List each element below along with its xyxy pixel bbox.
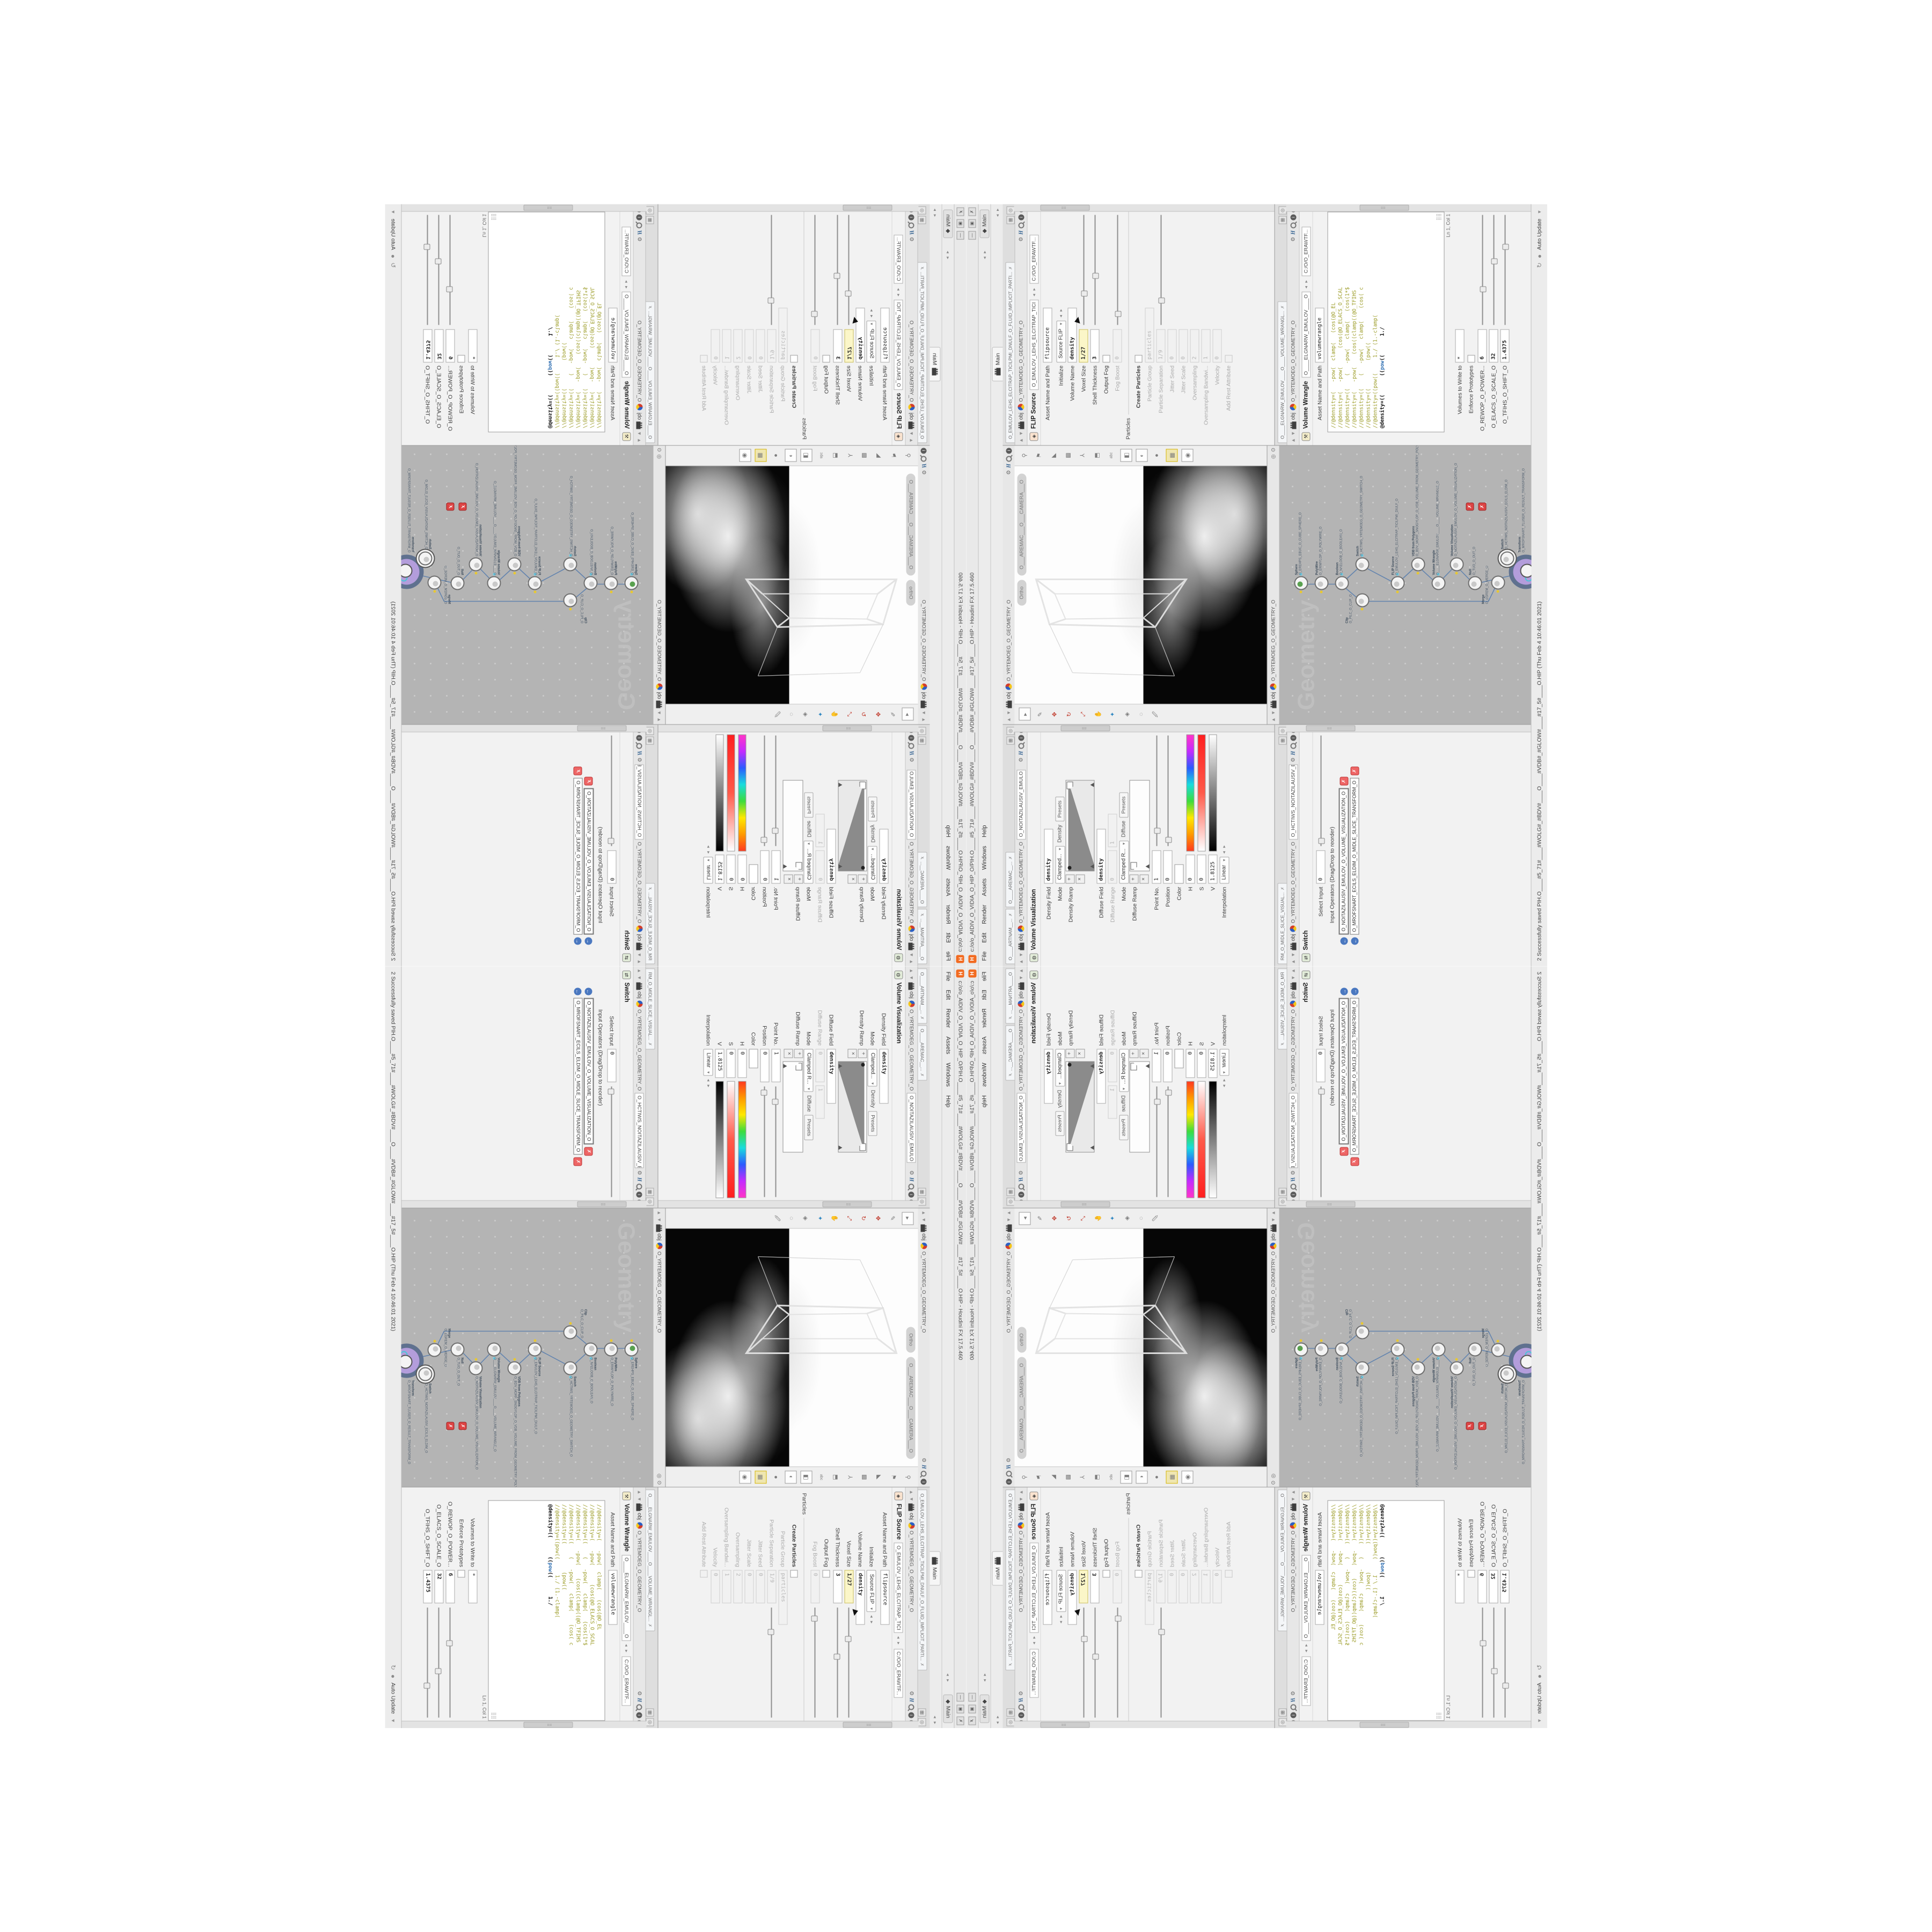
pin-display-icon[interactable]: ⚲ [903, 1471, 913, 1483]
pane-scrollbar[interactable] [658, 1200, 918, 1207]
volumes-to-write-input[interactable]: * [468, 329, 477, 362]
tripod-display-icon[interactable]: ⅄ [1077, 449, 1087, 461]
info-icon[interactable]: i [909, 1191, 914, 1197]
voxel-size-slider[interactable] [1080, 1606, 1087, 1718]
create-particles-checkbox[interactable] [791, 1570, 798, 1577]
saturation-slider[interactable] [727, 1081, 735, 1198]
grid-home-icon[interactable]: ▦ [1166, 1470, 1177, 1483]
nav-up-icon[interactable]: ▲ [1270, 1210, 1276, 1215]
viewport-render[interactable]: Ortho O___AREMAC___O___CAMERA___O [665, 1228, 918, 1466]
tripod-display-icon[interactable]: ⅄ [1077, 1471, 1087, 1483]
asset-file-path-field[interactable]: C:/O/O_ERAWTF... [894, 1649, 903, 1697]
update-mode-selector[interactable]: Auto Update [390, 1682, 396, 1714]
delete-input-icon[interactable]: ✗ [1340, 1147, 1348, 1155]
color-swatch[interactable] [749, 1049, 758, 1068]
node-vdb-from-polygons[interactable] [507, 557, 521, 571]
tab-close-icon[interactable]: ✗ [648, 1042, 653, 1046]
saturation-input[interactable]: 0 [1197, 1049, 1206, 1078]
power-slider[interactable] [1479, 1606, 1486, 1718]
menu-edit[interactable]: Edit [945, 932, 951, 942]
scale-tool-icon[interactable]: ⤢ [1078, 1212, 1088, 1224]
value-input[interactable]: 1.8125 [1208, 1049, 1217, 1078]
jitter-seed-input[interactable]: 0 [1167, 329, 1176, 362]
tab-close-icon[interactable]: ✗ [1008, 913, 1013, 917]
pane-tab-flip[interactable]: O_EMULOV_LEHS_ELCITRAP_TICILPMI_DNULF_O_… [918, 262, 927, 442]
pin-display-icon[interactable]: ⚲ [1019, 449, 1029, 461]
asset-file-path-field[interactable]: C:/O/O_ERAWTF... [894, 235, 903, 283]
search-icon[interactable] [1018, 743, 1024, 749]
density-mode-dropdown[interactable]: Clamped... [868, 846, 877, 883]
pane-maximize-icon[interactable]: ◎ [646, 727, 654, 735]
enforce-prototypes-checkbox[interactable] [458, 1570, 465, 1577]
jitter-scale-input[interactable]: 0 [744, 329, 753, 362]
diffuse-mode-dropdown[interactable]: Clamped R... [1119, 840, 1129, 883]
nav-up-icon[interactable]: ▲ [1290, 438, 1296, 443]
gear-icon[interactable]: ⚙ [909, 1170, 914, 1175]
asset-file-path-field[interactable]: C:/O/O_ERAWTF... [1301, 1656, 1311, 1705]
network-path[interactable]: O_YRTEMOEG_O_GEOMETRY_O [1018, 320, 1024, 402]
pane-tab-wrangle[interactable]: O____ELGNARW_EMULOV____O____VOLUME_WRANG… [1277, 301, 1286, 442]
rotate-tool-icon[interactable]: ↻ [858, 1212, 869, 1224]
node-path-field[interactable]: O_NOITAZILAUSIV_EMULO [1016, 1093, 1026, 1162]
curve-display-icon[interactable]: ◣ [874, 1471, 884, 1483]
fog-boost-slider[interactable] [1114, 214, 1121, 326]
nav-down-icon[interactable]: ▼ [1290, 952, 1296, 957]
shell-thickness-slider[interactable] [834, 214, 841, 326]
spinner-arrows-icon[interactable]: ◂ ▸ [1221, 1079, 1227, 1088]
search-icon[interactable] [921, 456, 927, 462]
pane-scrollbar[interactable] [401, 204, 646, 211]
pane-maximize-icon[interactable]: ◎ [646, 1197, 654, 1205]
nav-down-icon[interactable]: ▼ [636, 431, 642, 436]
close-button[interactable]: ✗ [956, 1716, 964, 1725]
power-slider[interactable] [447, 214, 454, 326]
diffuse-range-max-input[interactable]: 1 [1108, 1085, 1117, 1118]
gear-icon[interactable]: ⚙ [636, 237, 642, 241]
search-icon[interactable] [1290, 743, 1296, 749]
info-icon[interactable]: i [909, 214, 914, 220]
flag-display-icon[interactable]: ⚑ [1033, 1471, 1044, 1483]
tab-close-icon[interactable]: ✗ [648, 887, 653, 890]
close-button[interactable]: ✗ [968, 207, 976, 216]
shelf-tab-main[interactable]: Main [992, 1551, 1002, 1585]
update-mode-selector[interactable]: Auto Update [390, 218, 396, 250]
fog-boost-slider[interactable] [811, 214, 819, 326]
scale-input[interactable]: 32 [1489, 329, 1498, 362]
tripod-display-icon[interactable]: ⅄ [845, 449, 855, 461]
tab-close-icon[interactable]: ✗ [1280, 305, 1285, 309]
pane-maximize-icon[interactable]: ◎ [918, 1197, 926, 1205]
diffuse-mode-dropdown[interactable]: Clamped R... [804, 1049, 814, 1092]
ramp-add-point-button[interactable]: + [1065, 874, 1074, 883]
nav-up-icon[interactable]: ▲ [909, 438, 914, 443]
houdini-help-icon[interactable]: H [1290, 1697, 1296, 1702]
maximize-button[interactable]: ▣ [956, 1704, 964, 1713]
checker-display-icon[interactable]: ▩ [1062, 449, 1073, 461]
pose-tool-icon[interactable]: ✦ [1107, 1212, 1117, 1224]
lasso-tool-icon[interactable]: ◌ [786, 1212, 796, 1224]
spinner-arrows-icon[interactable]: ◂ ▸ [705, 844, 711, 854]
network-path[interactable]: O_YRTEMOEG_O_GEOMETRY_O [636, 1009, 642, 1091]
asset-file-path-field[interactable]: C:/O/O_ERAWTF... [1301, 226, 1311, 275]
cylinder-display-icon[interactable]: ⬒ [1091, 449, 1102, 461]
lasso-tool-icon[interactable]: ◌ [1136, 708, 1146, 720]
node-vdb-from-polygons[interactable] [1411, 1361, 1425, 1375]
search-icon[interactable] [921, 1470, 927, 1476]
houdini-help-icon[interactable]: H [1006, 464, 1012, 468]
viewport-path[interactable]: O_YRTEMOEG_O_GEOMETRY_O [1006, 599, 1012, 681]
menu-help[interactable]: Help [945, 1095, 951, 1107]
enforce-prototypes-checkbox[interactable] [1467, 1570, 1475, 1577]
minimize-button[interactable]: — [968, 1693, 976, 1701]
target-icon[interactable]: ◎ [1270, 454, 1276, 459]
nav-down-icon[interactable]: ▼ [1018, 975, 1023, 980]
hand-tool-icon[interactable]: ✋ [1092, 708, 1103, 720]
image-plane-icon[interactable]: ◧ [1120, 1470, 1132, 1483]
nav-down-icon[interactable]: ▼ [1270, 1217, 1276, 1222]
add-rest-attribute-checkbox[interactable] [700, 1570, 708, 1577]
menu-render[interactable]: Render [945, 904, 951, 924]
ramp-tick[interactable] [1145, 1064, 1149, 1068]
pane-maximize-icon[interactable]: ◎ [1006, 727, 1014, 735]
add-rest-attribute-checkbox[interactable] [1225, 1570, 1232, 1577]
houdini-help-icon[interactable]: H [1290, 1177, 1296, 1181]
shaded-mode-icon[interactable]: ◐ [1136, 1470, 1147, 1483]
ramp-delete-point-button[interactable]: × [1075, 874, 1085, 883]
point-no-input[interactable]: 1 [771, 850, 780, 883]
node-error-badge[interactable]: ✗ [1466, 1422, 1474, 1430]
delete-input-icon[interactable]: ✗ [584, 777, 593, 785]
hue-input[interactable]: 0 [737, 854, 747, 883]
node-sphere[interactable] [624, 1342, 638, 1356]
pane-split-icon[interactable]: ▦ [1006, 1188, 1014, 1196]
network-path[interactable]: O_YRTEMOEG_O_GEOMETRY_O [1290, 320, 1296, 402]
shift-slider[interactable] [1501, 1606, 1509, 1718]
node-name-field[interactable]: O_EMULOV_LEHS_ELCITRAP_TICI [894, 299, 903, 390]
spinner-arrows-icon[interactable]: ◂ ▸ [1031, 287, 1037, 296]
node-flip-source[interactable] [1391, 1342, 1404, 1356]
menu-assets[interactable]: Assets [945, 878, 951, 896]
tab-close-icon[interactable]: ✗ [648, 305, 653, 309]
volume-name-input[interactable]: density [1067, 1570, 1077, 1624]
pane-split-icon[interactable]: ▦ [646, 216, 654, 224]
search-icon[interactable] [636, 1704, 642, 1710]
pane-scrollbar[interactable] [1014, 1721, 1274, 1728]
pane-split-icon[interactable]: ▦ [1006, 216, 1014, 224]
output-fog-checkbox[interactable] [823, 355, 830, 362]
interpolation-dropdown[interactable]: Linear [704, 1049, 713, 1075]
viewport-path[interactable]: O_YRTEMOEG_O_GEOMETRY_O [921, 1251, 927, 1333]
ramp-add-point-button[interactable]: + [1065, 1049, 1074, 1058]
viewport-render[interactable]: Ortho O___AREMAC___O___CAMERA___O [665, 466, 918, 704]
pane-tab-wrangle[interactable]: O____ELGNARW_EMULOV____O____VOLUME_WRANG… [1277, 1489, 1286, 1630]
particles-section-label[interactable]: Particles [1125, 418, 1131, 439]
point-no-slider[interactable] [772, 1085, 780, 1198]
network-path[interactable]: O_YRTEMOEG_O_GEOMETRY_O [909, 1009, 914, 1091]
diffuse-field-input[interactable]: density [826, 1049, 836, 1103]
gear-icon[interactable]: ⚙ [1018, 237, 1024, 241]
cylinder-display-icon[interactable]: ⬒ [830, 449, 841, 461]
ramp-flag-marker[interactable] [795, 862, 802, 869]
value-input[interactable]: 1.8125 [1208, 854, 1217, 883]
nav-up-icon[interactable]: ▲ [1006, 717, 1011, 722]
spinner-arrows-icon[interactable]: ◂ ▸ [705, 1079, 711, 1088]
node-volume-visualization[interactable] [1450, 557, 1463, 571]
ramp-tick[interactable] [1090, 864, 1094, 868]
diffuse-ramp-widget[interactable] [1129, 1061, 1150, 1152]
menu-help[interactable]: Help [945, 825, 951, 837]
ramp-tick[interactable] [838, 1064, 842, 1068]
ramp-add-point-button[interactable]: + [794, 874, 803, 883]
search-icon[interactable] [1290, 1183, 1296, 1189]
delete-input-icon[interactable]: ✗ [1350, 766, 1359, 775]
network-path[interactable]: O_YRTEMOEG_O_GEOMETRY_O [1270, 1251, 1276, 1333]
houdini-help-icon[interactable]: H [1018, 1177, 1024, 1181]
node-volume-wrangle[interactable] [1431, 1342, 1445, 1356]
update-mode-selector[interactable]: Auto Update [1536, 1682, 1542, 1714]
search-icon[interactable] [636, 222, 642, 228]
interpolation-dropdown[interactable]: Linear [1219, 1049, 1229, 1075]
point-no-input[interactable]: 1 [1152, 850, 1161, 883]
nav-down-icon[interactable]: ▼ [1270, 710, 1276, 715]
value-slider[interactable] [1209, 1081, 1217, 1198]
node-name-field[interactable]: O____ELGNARW_EMULOV____O [1301, 291, 1311, 377]
pane-maximize-icon[interactable]: ◎ [918, 727, 926, 735]
node-null[interactable] [1468, 1342, 1482, 1356]
pane-scrollbar[interactable] [658, 724, 918, 732]
shift-slider[interactable] [1501, 214, 1509, 326]
shell-thickness-slider[interactable] [1091, 214, 1099, 326]
pane-split-icon[interactable]: ▦ [1278, 1188, 1286, 1196]
nav-down-icon[interactable]: ▼ [1018, 952, 1023, 957]
scale-slider[interactable] [1490, 214, 1497, 326]
jitter-seed-input[interactable]: 0 [1167, 1570, 1176, 1603]
houdini-help-icon[interactable]: H [909, 1697, 914, 1702]
search-icon[interactable] [909, 1704, 914, 1710]
network-canvas[interactable]: Geometry [401, 1208, 653, 1487]
node-vdb-from-polygons[interactable] [1411, 557, 1425, 571]
search-icon[interactable] [1006, 456, 1012, 462]
particle-separation-input[interactable]: 1/9 [767, 329, 776, 362]
particle-group-input[interactable]: particles [1145, 308, 1154, 362]
nav-up-icon[interactable]: ▲ [636, 438, 642, 443]
dark-sphere-icon[interactable]: ● [770, 449, 781, 461]
density-mode-dropdown[interactable]: Clamped... [1055, 846, 1065, 883]
position-input[interactable]: 0 [760, 850, 769, 883]
reorder-arrow-icon[interactable]: ← [1351, 987, 1358, 995]
node-path-field[interactable]: O_NOITAZILAUSIV_EMULO [1016, 770, 1026, 839]
node-error-badge[interactable]: ✗ [458, 502, 466, 510]
network-path[interactable]: O_YRTEMOEG_O_GEOMETRY_O [656, 1251, 662, 1333]
volumes-to-write-input[interactable]: * [1455, 1570, 1464, 1603]
pane-maximize-icon[interactable]: ◎ [1006, 1197, 1014, 1205]
scale-input[interactable]: 32 [434, 329, 443, 362]
nav-up-icon[interactable]: ▲ [1006, 1210, 1011, 1215]
menu-help[interactable]: Help [981, 825, 987, 837]
volume-name-input[interactable]: density [855, 308, 865, 362]
pose-tool-icon[interactable]: ✦ [815, 1212, 825, 1224]
node-switch-2[interactable] [1500, 551, 1514, 565]
particle-separation-slider[interactable] [1157, 1606, 1165, 1718]
gear-icon[interactable]: ⚙ [909, 757, 914, 762]
nav-up-icon[interactable]: ▲ [1290, 1489, 1296, 1494]
search-icon[interactable] [1018, 222, 1024, 228]
node-error-badge[interactable]: ✗ [1478, 502, 1486, 510]
network-path[interactable]: O_YRTEMOEG_O_GEOMETRY_O [1018, 841, 1024, 923]
gear-icon[interactable]: ⚙ [1290, 757, 1296, 762]
node-name-field[interactable]: O_EMULOV_LEHS_ELCITRAP_TICI [1029, 299, 1038, 390]
pane-tab-mantra[interactable]: O____ARTNAM__...✗ [918, 909, 927, 964]
info-icon[interactable]: i [636, 1191, 642, 1197]
value-input[interactable]: 1.8125 [715, 1049, 724, 1078]
pane-split-icon[interactable]: ▦ [1006, 1708, 1014, 1716]
pin-display-icon[interactable]: ⚲ [1019, 1471, 1029, 1483]
nav-up-icon[interactable]: ▲ [636, 959, 642, 964]
pose-tool-icon[interactable]: ✦ [815, 708, 825, 720]
nav-down-icon[interactable]: ▼ [1006, 710, 1011, 715]
pane-split-icon[interactable]: ▦ [1278, 1708, 1286, 1716]
tab-close-icon[interactable]: ✗ [1008, 1016, 1013, 1020]
nav-down-icon[interactable]: ▼ [909, 952, 914, 957]
menu-edit[interactable]: Edit [981, 990, 987, 1000]
pane-split-icon[interactable]: ▦ [1278, 736, 1286, 744]
menu-render[interactable]: Render [945, 1008, 951, 1028]
node-name-field[interactable]: O_EMULOV_LEHS_ELCITRAP_TICI [894, 1542, 903, 1633]
pane-scrollbar[interactable] [1286, 724, 1531, 732]
diffuse-range-max-input[interactable]: 1 [815, 814, 824, 847]
create-particles-checkbox[interactable] [1135, 1570, 1142, 1577]
resize-grip-icon[interactable]: ⣿⣿ [489, 213, 496, 220]
node-null[interactable] [450, 576, 464, 590]
shift-slider[interactable] [424, 214, 431, 326]
tab-close-icon[interactable]: ✗ [1280, 1623, 1285, 1627]
tab-close-icon[interactable]: ✗ [1008, 1663, 1013, 1666]
ramp-flag-marker[interactable] [795, 1063, 802, 1070]
diffuse-presets-button[interactable]: Presets [804, 1115, 813, 1139]
density-mode-dropdown[interactable]: Clamped... [1055, 1049, 1065, 1086]
curve-display-icon[interactable]: ◣ [1048, 449, 1058, 461]
pane-tab-switch[interactable]: RM_O_MIDLE_SLICE_VISUAL...✗ [646, 883, 655, 964]
snap-tool-icon[interactable]: ◈ [1121, 708, 1132, 720]
position-input[interactable]: 0 [1163, 850, 1172, 883]
network-path[interactable]: O_YRTEMOEG_O_GEOMETRY_O [909, 320, 914, 402]
houdini-help-icon[interactable]: H [909, 230, 914, 235]
target-icon[interactable]: ◎ [656, 1473, 662, 1478]
shaded-mode-icon[interactable]: ◐ [785, 1470, 796, 1483]
rotate-tool-icon[interactable]: ↻ [1063, 708, 1074, 720]
enforce-prototypes-checkbox[interactable] [458, 355, 465, 362]
gear-icon[interactable]: ⚙ [1006, 1458, 1012, 1462]
pane-tab-camera[interactable]: O____AREMAC__...✗ [1005, 852, 1014, 907]
node-boolean[interactable] [583, 576, 597, 590]
tab-close-icon[interactable]: ✗ [1280, 887, 1285, 890]
node-polywire[interactable] [604, 576, 618, 590]
camera-name-pill[interactable]: O___AREMAC___O___CAMERA___O [906, 1357, 915, 1459]
density-presets-button[interactable]: Presets [868, 1111, 877, 1136]
pane-maximize-icon[interactable]: ◎ [646, 206, 654, 214]
oversampling-input[interactable]: 2 [1190, 1570, 1199, 1603]
pane-split-icon[interactable]: ▦ [918, 1708, 926, 1716]
initialize-dropdown[interactable]: Source FLIP [867, 1570, 876, 1612]
node-volume-visualization[interactable] [1450, 1361, 1463, 1375]
nav-up-icon[interactable]: ▲ [1290, 968, 1296, 973]
select-input-slider[interactable] [1317, 1085, 1324, 1198]
image-plane-icon[interactable]: ◧ [800, 449, 812, 462]
nav-up-icon[interactable]: ▲ [921, 717, 926, 722]
ramp-delete-point-button[interactable]: × [1075, 1049, 1085, 1058]
move-tool-icon[interactable]: ✥ [873, 708, 883, 720]
network-path[interactable]: O_YRTEMOEG_O_GEOMETRY_O [636, 320, 642, 402]
asset-name-field[interactable]: volumewrangle [608, 1570, 617, 1624]
curve-display-icon[interactable]: ◣ [874, 449, 884, 461]
info-icon[interactable]: i [1006, 1479, 1012, 1484]
info-icon[interactable]: i [1018, 1191, 1024, 1197]
node-merge[interactable] [427, 575, 441, 589]
pane-split-icon[interactable]: ▦ [1278, 216, 1286, 224]
node-path-field[interactable]: O_NOITAZILAUSIV_EMULO [907, 1093, 916, 1162]
pane-split-icon[interactable]: ▦ [646, 1708, 654, 1716]
flag-display-icon[interactable]: ⚑ [1033, 449, 1044, 461]
ramp-add-point-button[interactable]: + [1129, 1049, 1138, 1058]
node-switch-2[interactable] [418, 1367, 432, 1381]
select-input-field[interactable]: 0 [607, 850, 616, 883]
node-volume-wrangle[interactable] [487, 1342, 501, 1356]
snap-tool-icon[interactable]: ◈ [800, 1212, 811, 1224]
spinner-arrows-icon[interactable]: ◂ ▸ [868, 308, 874, 317]
node-error-badge[interactable]: ✗ [1478, 1422, 1486, 1430]
node-merge[interactable] [427, 1343, 441, 1357]
power-input[interactable]: 6 [445, 1570, 455, 1603]
density-ramp-widget[interactable] [1065, 780, 1094, 871]
menu-assets[interactable]: Assets [981, 878, 987, 896]
nav-down-icon[interactable]: ▼ [909, 975, 914, 980]
particle-group-input[interactable]: particles [778, 308, 787, 362]
pane-scrollbar[interactable] [401, 1721, 646, 1728]
jitter-seed-input[interactable]: 0 [756, 1570, 765, 1603]
delete-input-icon[interactable]: ✗ [1350, 1157, 1359, 1166]
gear-icon[interactable]: ⚙ [921, 1458, 927, 1462]
node-null[interactable] [1468, 576, 1482, 590]
houdini-help-icon[interactable]: H [909, 1177, 914, 1181]
gear-icon[interactable]: ⚙ [1018, 757, 1024, 762]
asset-name-field[interactable]: volumewrangle [1315, 1570, 1324, 1624]
tab-close-icon[interactable]: ✗ [920, 1663, 925, 1666]
info-icon[interactable]: i [1290, 1712, 1296, 1718]
shaded-mode-icon[interactable]: ◐ [785, 449, 796, 462]
node-boolean[interactable] [1335, 1342, 1349, 1356]
particle-separation-slider[interactable] [768, 214, 775, 326]
node-boolean[interactable] [583, 1342, 597, 1356]
input-operator-item[interactable]: O_MROFSNART_ECILS_ELDIM_O_MIDLE_SLICE_TR… [573, 778, 582, 934]
particle-separation-slider[interactable] [768, 1606, 775, 1718]
node-name-field[interactable]: O____ELGNARW_EMULOV____O [622, 291, 631, 377]
select-input-slider[interactable] [608, 734, 616, 847]
select-tool-icon[interactable]: ▸ [1019, 1212, 1030, 1225]
density-field-input[interactable]: density [1044, 829, 1053, 883]
density-presets-button[interactable]: Presets [1055, 1111, 1064, 1136]
node-flip-source[interactable] [1391, 576, 1404, 590]
spinner-arrows-icon[interactable]: ◂ ▸ [868, 1615, 874, 1624]
pane-tab-mantra[interactable]: O____ARTNAM__...✗ [918, 968, 927, 1023]
resize-grip-icon[interactable]: ⣿⣿ [1436, 213, 1443, 220]
checker-display-icon[interactable]: ▩ [859, 449, 870, 461]
shell-thickness-input[interactable]: 3 [1090, 1570, 1099, 1603]
density-presets-button[interactable]: Presets [868, 796, 877, 821]
info-icon[interactable]: i [909, 735, 914, 741]
power-input[interactable]: 6 [445, 329, 455, 362]
point-no-input[interactable]: 1 [1152, 1049, 1161, 1082]
pane-maximize-icon[interactable]: ◎ [918, 1718, 926, 1726]
